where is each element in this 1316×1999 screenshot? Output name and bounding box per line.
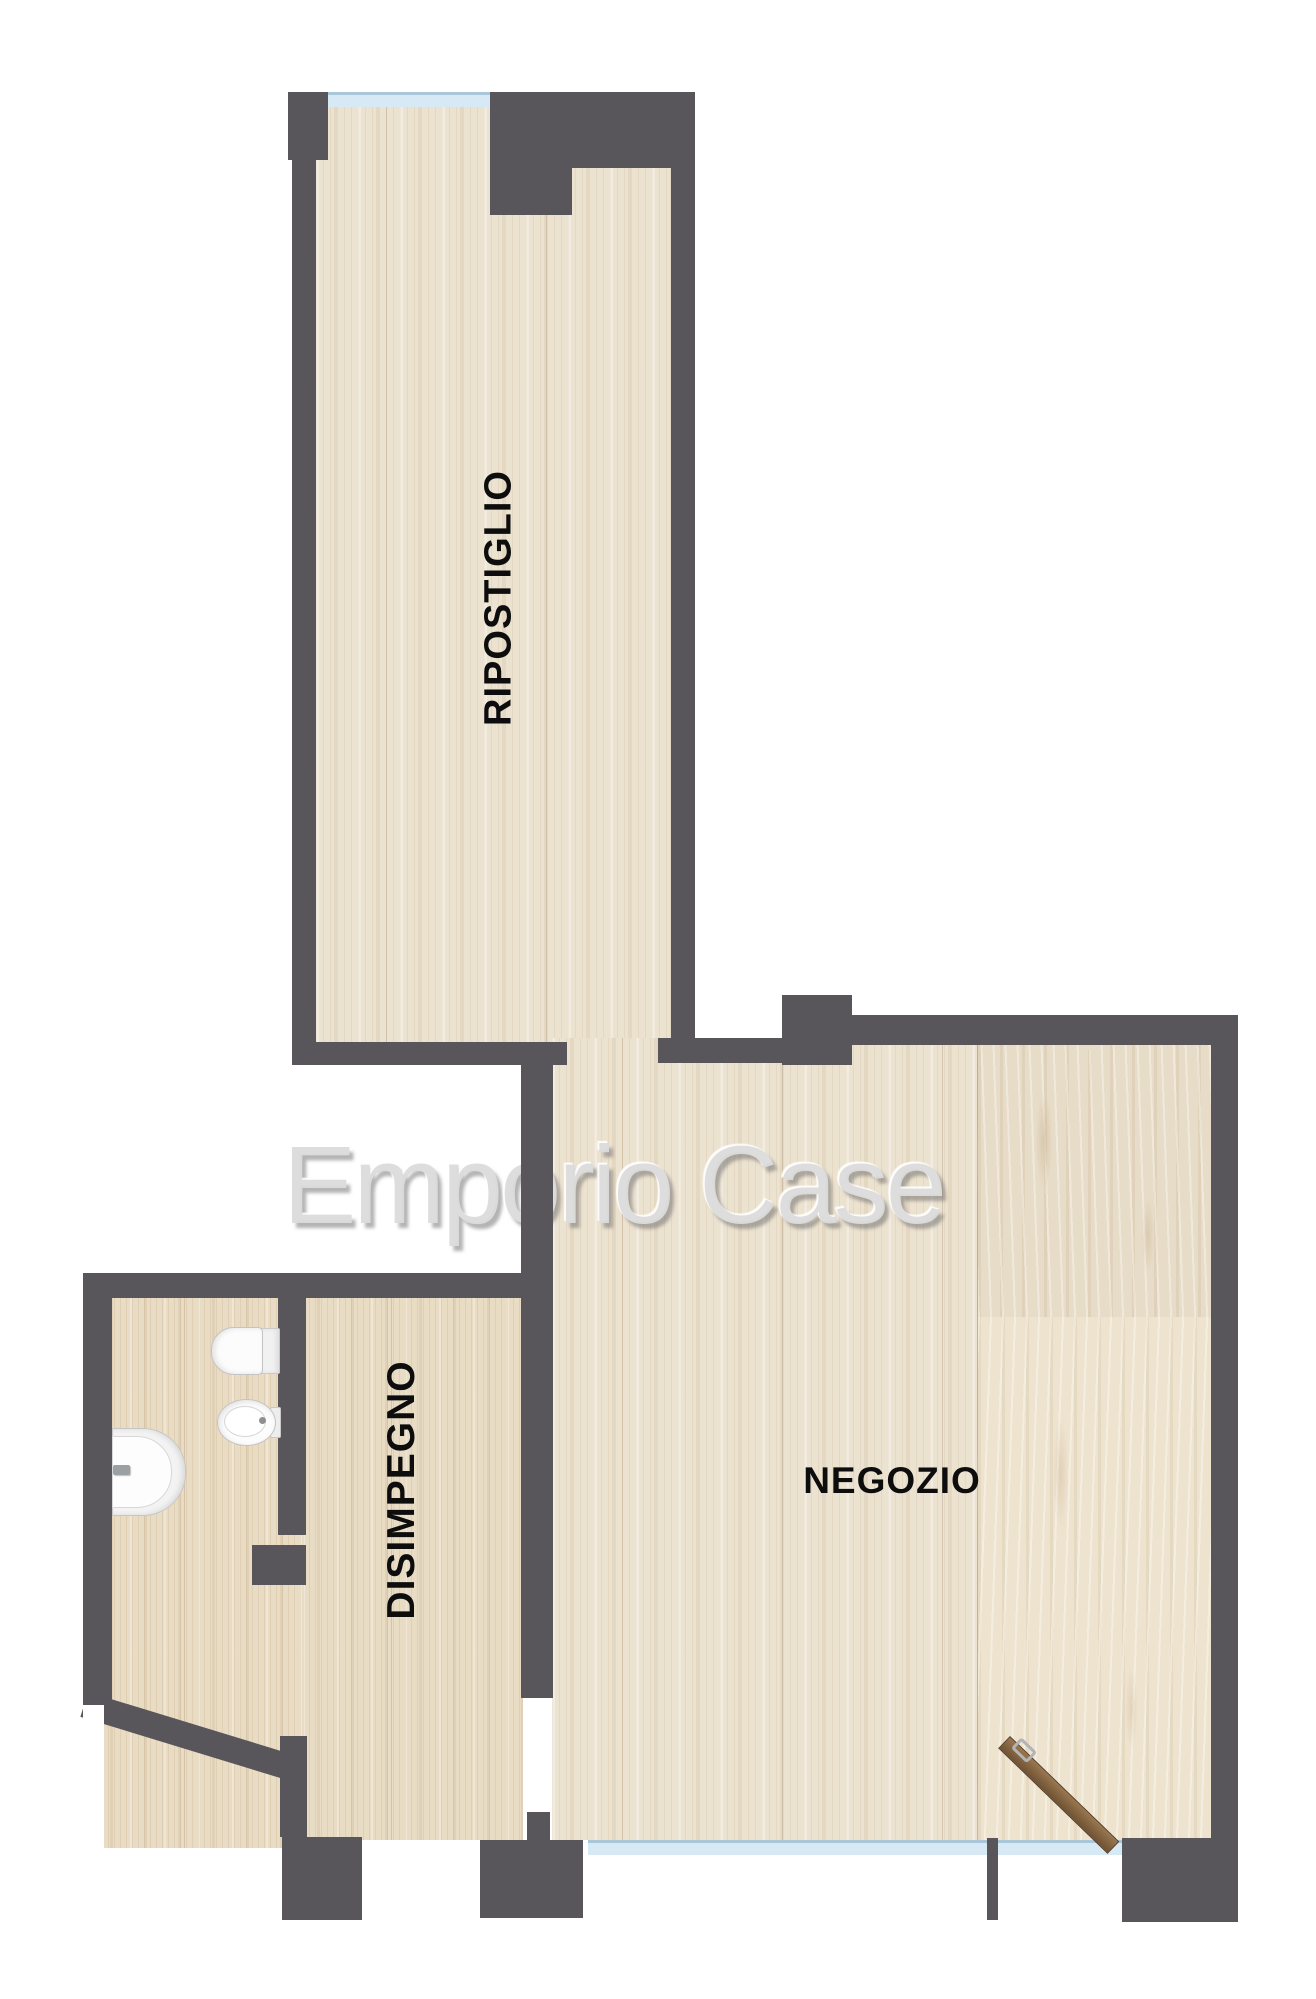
- wall-segment: [83, 1273, 112, 1705]
- storefront-window-left: [588, 1840, 987, 1855]
- wall-jamb: [252, 1545, 306, 1585]
- wall-corner-block: [480, 1840, 583, 1918]
- wall-segment: [852, 1015, 1213, 1045]
- bidet-tap: [259, 1417, 266, 1424]
- floor-negozio-upper-right: [977, 1045, 1214, 1318]
- room-label-negozio: NEGOZIO: [803, 1460, 981, 1502]
- bidet: [217, 1399, 281, 1444]
- floorplan: Emporio Case RIPOSTIGLIO: [0, 0, 1316, 1999]
- wall-corner-block: [282, 1837, 362, 1920]
- sink-faucet: [113, 1465, 130, 1475]
- wall-segment: [295, 1042, 567, 1065]
- wall-segment: [521, 1065, 553, 1698]
- exterior-mask: [83, 1705, 104, 1999]
- wall-segment: [658, 1038, 782, 1063]
- wall-pier: [987, 1838, 998, 1920]
- wall-segment: [490, 92, 695, 168]
- room-label-disimpegno: DISIMPEGNO: [380, 1360, 424, 1619]
- wall-segment: [278, 1295, 306, 1535]
- toilet-bowl: [211, 1327, 263, 1375]
- wall-segment: [292, 150, 316, 1065]
- wall-segment: [1211, 1015, 1238, 1838]
- toilet: [211, 1327, 278, 1373]
- wall-segment: [671, 92, 695, 1038]
- wall-segment: [280, 1736, 307, 1837]
- agency-watermark: Emporio Case: [283, 1122, 944, 1249]
- wall-segment: [527, 1812, 550, 1840]
- wall-segment: [490, 160, 572, 215]
- wall-pillar: [782, 995, 852, 1065]
- wall-corner-block: [1122, 1838, 1238, 1922]
- room-label-ripostiglio: RIPOSTIGLIO: [478, 470, 521, 726]
- corner-sink: [112, 1428, 184, 1514]
- ripostiglio-window: [328, 92, 490, 107]
